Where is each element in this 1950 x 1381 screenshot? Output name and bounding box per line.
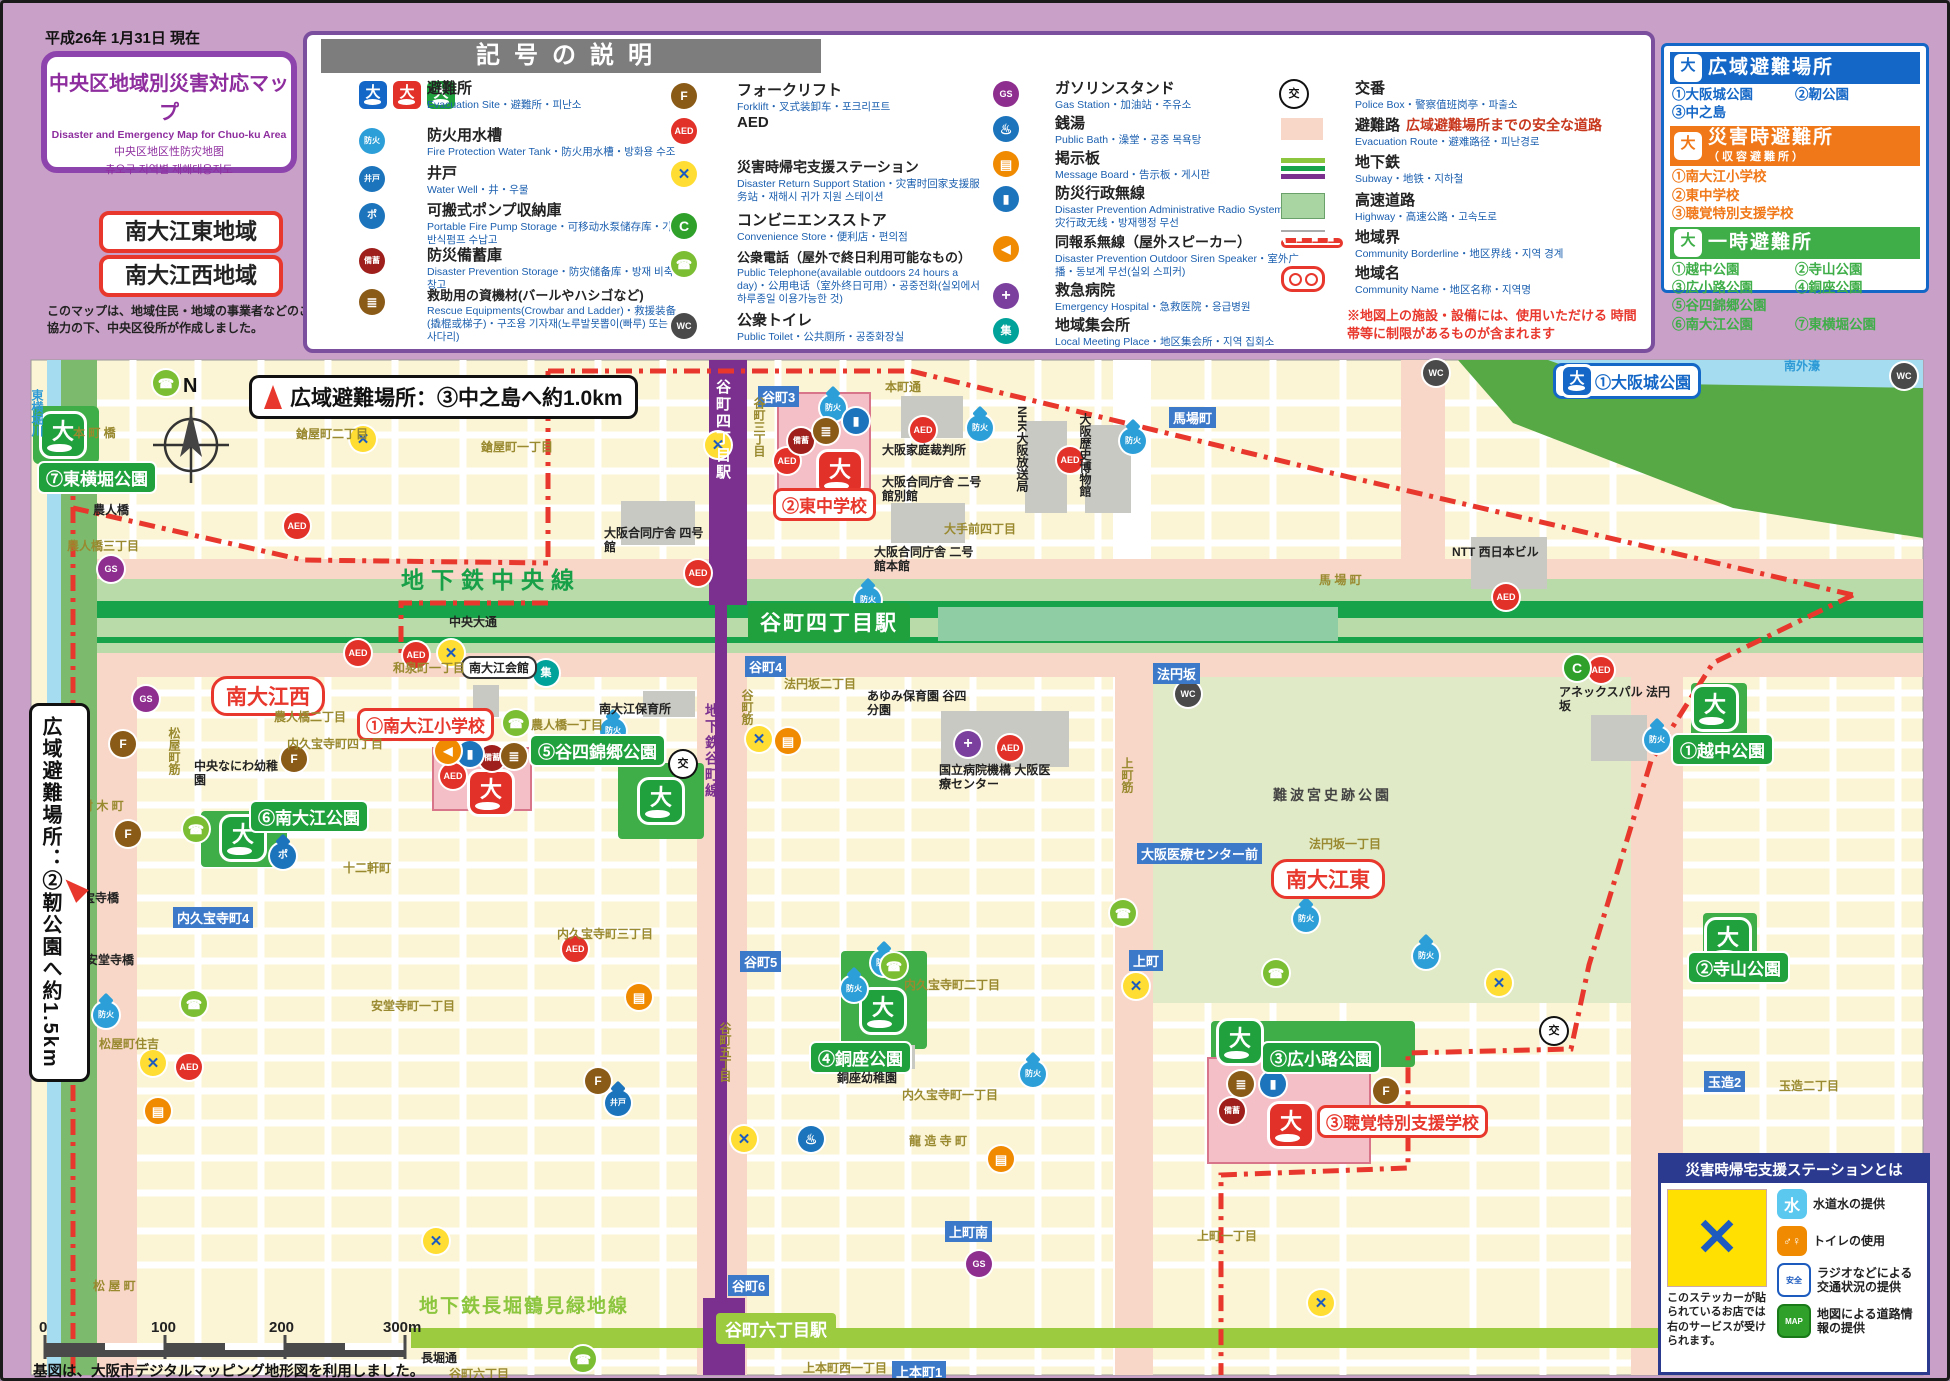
shelter-list-item: ③広小路公園 bbox=[1672, 279, 1795, 297]
conv-icon: C bbox=[671, 213, 697, 239]
legend-item: 銭湯Public Bath・澡堂・공중 목욕탕 bbox=[1055, 112, 1201, 147]
map-label: 国立病院機構 大阪医療センター bbox=[939, 763, 1059, 792]
wc-icon: WC bbox=[671, 313, 697, 339]
map-label: ⑤谷四錦郷公園 bbox=[529, 734, 666, 767]
ladder-icon: ≣ bbox=[501, 743, 527, 769]
highway-swatch bbox=[1281, 193, 1325, 219]
shelter-section-title: 広域避難場所 bbox=[1708, 58, 1834, 78]
support-service-row: ♂♀トイレの使用 bbox=[1777, 1226, 1921, 1256]
legend-item-icon: ☎ bbox=[671, 251, 697, 277]
legend-item-icon: 集 bbox=[993, 318, 1019, 344]
legend-item-label: 同報系無線（屋外スピーカー） bbox=[1055, 232, 1305, 252]
banner-text: 広域避難場所：③中之島へ約1.0km bbox=[290, 382, 623, 412]
phone-icon: ☎ bbox=[503, 710, 529, 736]
shelter-icon: 大 bbox=[1270, 1104, 1312, 1146]
map-label: 地下鉄中央線 bbox=[401, 561, 581, 595]
legend-item-label: 救急病院 bbox=[1055, 279, 1251, 300]
title-text: 災害時避難所 bbox=[1708, 128, 1834, 148]
border-swatch bbox=[1281, 230, 1343, 248]
legend-item: 可搬式ポンプ収納庫Portable Fire Pump Storage・可移动水… bbox=[427, 199, 677, 247]
map-label: 谷町六丁目 bbox=[449, 1365, 509, 1381]
legend-item-label: コンビニエンスストア bbox=[737, 209, 908, 230]
map-label: 農人橋一丁目 bbox=[531, 716, 603, 733]
sento-icon: ♨ bbox=[993, 116, 1019, 142]
legend-item: 避難所Evacuation Site・避難所・피난소 bbox=[427, 77, 581, 112]
map-label: 馬 場 町 bbox=[1319, 571, 1362, 588]
support-service-label: ラジオなどによる交通状況の提供 bbox=[1817, 1266, 1921, 1295]
map-label: 内久宝寺町二丁目 bbox=[904, 976, 1000, 993]
ladder-icon: ≣ bbox=[359, 289, 385, 315]
legend-item: 地域界Community Borderline・地区界线・지역 경계 bbox=[1355, 226, 1563, 261]
legend-item-label: 銭湯 bbox=[1055, 112, 1201, 133]
legend-item: フォークリフトForklift・叉式装卸车・포크리프트 bbox=[737, 79, 890, 114]
legend-item-sub: Subway・地铁・지하철 bbox=[1355, 173, 1463, 186]
fire-icon: 防火 bbox=[967, 415, 993, 441]
aed-icon: AED bbox=[440, 763, 466, 789]
map-label: 谷町筋 bbox=[739, 689, 756, 725]
shelter-section-header: 大災害時避難所（収容避難所） bbox=[1670, 126, 1920, 166]
shelter-section-items: ①越中公園②寺山公園③広小路公園④銅座公園⑤谷四錦郷公園⑥南大江公園⑦東横堀公園 bbox=[1670, 259, 1920, 336]
fire-icon: 防火 bbox=[93, 1002, 119, 1028]
legend-item-icon: ポ bbox=[359, 203, 385, 229]
legend-item-sub: Evacuation Site・避難所・피난소 bbox=[427, 99, 581, 112]
bichiku-icon: 備蓄 bbox=[359, 248, 385, 274]
police-icon: 交 bbox=[670, 751, 696, 777]
board-icon: ▤ bbox=[988, 1146, 1014, 1172]
ido-icon: 井戸 bbox=[605, 1090, 631, 1116]
map-label: 南大江保育所 bbox=[599, 700, 671, 717]
legend-item: 公衆電話（屋外で終日利用可能なもの）Public Telephone(avail… bbox=[737, 247, 987, 306]
map-label: 谷町三丁目 bbox=[751, 397, 768, 457]
subway-line bbox=[1281, 158, 1325, 163]
map-label: ③広小路公園 bbox=[1261, 1041, 1381, 1074]
map-label: 大阪医療センター前 bbox=[1137, 843, 1262, 864]
map-label: 玉造二丁目 bbox=[1779, 1077, 1839, 1094]
legend-item-sub: Message Board・告示板・게시판 bbox=[1055, 169, 1210, 182]
title-box: 中央区地域別災害対応マップ Disaster and Emergency Map… bbox=[41, 51, 297, 173]
map-label: 本 町 橋 bbox=[73, 424, 116, 441]
support-service-label: 水道水の提供 bbox=[1813, 1197, 1885, 1211]
pump-icon: ポ bbox=[270, 843, 296, 869]
map-label: 長堀通 bbox=[421, 1349, 457, 1366]
legend-item-label: 避難所 bbox=[427, 77, 581, 98]
legend-item-icon bbox=[1281, 266, 1325, 292]
shelter-icon: 大 bbox=[393, 81, 421, 109]
map-label: NTT 西日本ビル bbox=[1452, 543, 1539, 560]
legend-item-label: 地下鉄 bbox=[1355, 151, 1463, 172]
map-label: 大阪合同庁舎 二号館本館 bbox=[874, 545, 984, 574]
legend-item-label: 地域名 bbox=[1355, 262, 1531, 283]
legend-item: 避難路広域避難場所までの安全な道路Evacuation Route・避难路径・피… bbox=[1355, 114, 1602, 149]
shelter-list-item: ③聴覚特別支援学校 bbox=[1672, 205, 1918, 223]
ladder-icon: ≣ bbox=[1228, 1071, 1254, 1097]
support-service-row: 水水道水の提供 bbox=[1777, 1189, 1921, 1219]
scale-tick-label: 0 bbox=[39, 1319, 47, 1336]
shelter-icon: 大 bbox=[1694, 687, 1736, 729]
map-label: あゆみ保育園 谷四分園 bbox=[867, 689, 977, 718]
support-service-row: MAP地図による道路情報の提供 bbox=[1777, 1304, 1921, 1338]
shelter-section-items: ①大阪城公園②靭公園③中之島 bbox=[1670, 84, 1920, 124]
shukai-icon: 集 bbox=[993, 318, 1019, 344]
map-label: 内久宝寺町四丁目 bbox=[287, 735, 383, 752]
aed-icon: AED bbox=[1588, 657, 1614, 683]
pump-icon: ポ bbox=[359, 203, 385, 229]
legend-item-label: 地域界 bbox=[1355, 226, 1563, 247]
date-note: 平成26年 1月31日 現在 bbox=[45, 27, 200, 48]
map-label: 安堂寺橋 bbox=[86, 951, 134, 968]
map-label: 中央なにわ幼稚園 bbox=[194, 759, 284, 788]
legend-item-label: 可搬式ポンプ収納庫 bbox=[427, 199, 677, 220]
map-label: ③聴覚特別支援学校 bbox=[1317, 1105, 1488, 1138]
map-label: 農人橋 bbox=[93, 501, 129, 518]
page-title-ko: 츄오구 지역별 재해대응지도 bbox=[47, 161, 291, 177]
legend-item-label: 公衆電話（屋外で終日利用可能なもの） bbox=[737, 247, 987, 266]
map-label: 谷町4 bbox=[745, 656, 786, 677]
compass-north-label: N bbox=[183, 375, 197, 398]
support-service-row: 安全ラジオなどによる交通状況の提供 bbox=[1777, 1263, 1921, 1297]
phone-icon: ☎ bbox=[1263, 960, 1289, 986]
fork-icon: F bbox=[110, 731, 136, 757]
legend-item-sub: Rescue Equipments(Crowbar and Ladder)・救援… bbox=[427, 305, 677, 344]
conv-icon: C bbox=[1564, 655, 1590, 681]
shelter-section-header: 大広域避難場所 bbox=[1670, 52, 1920, 84]
map-label: 龍 造 寺 町 bbox=[909, 1132, 967, 1149]
map-label: 玉造2 bbox=[1704, 1071, 1745, 1092]
speaker-icon: ◀ bbox=[435, 738, 461, 764]
map-label: ②東中学校 bbox=[773, 488, 876, 521]
shelter-icon: 大 bbox=[359, 81, 387, 109]
wc-icon: WC bbox=[1175, 681, 1201, 707]
evacuation-direction-banner: 広域避難場所：②靭公園へ約1.5km bbox=[29, 703, 90, 1082]
police-icon: 交 bbox=[1541, 1018, 1567, 1044]
shelter-list-item: ⑤谷四錦郷公園 bbox=[1672, 297, 1918, 315]
red-arrow-icon bbox=[264, 385, 282, 409]
support-sticker-note: このステッカーが貼られているお店では右のサービスが受けられます。 bbox=[1667, 1291, 1771, 1348]
wc-icon: WC bbox=[1891, 363, 1917, 389]
legend-item-sub: Fire Protection Water Tank・防火用水槽・방화용 수조 bbox=[427, 146, 675, 159]
shelter-list-item: ②靭公園 bbox=[1795, 86, 1918, 104]
legend-item-label: 公衆トイレ bbox=[737, 309, 904, 330]
legend-item-sub: Community Name・地区名称・지역명 bbox=[1355, 284, 1531, 297]
kitaku-icon: ✕ bbox=[423, 1228, 449, 1254]
page-title-en: Disaster and Emergency Map for Chuo-ku A… bbox=[47, 129, 291, 141]
fork-icon: F bbox=[671, 83, 697, 109]
legend-item-label: 防火用水槽 bbox=[427, 124, 675, 145]
scale-tick-label: 200 bbox=[269, 1319, 294, 1336]
map-label: 上町一丁目 bbox=[1197, 1227, 1257, 1244]
aed-icon: AED bbox=[1493, 584, 1519, 610]
legend-item-sub: Disaster Prevention Outdoor Siren Speake… bbox=[1055, 253, 1305, 279]
legend-item-label: フォークリフト bbox=[737, 79, 890, 100]
map-label: 法円坂 bbox=[1153, 663, 1200, 684]
map-label: 法円坂二丁目 bbox=[784, 675, 856, 692]
title-text: 一時避難所 bbox=[1708, 233, 1813, 253]
support-service-label: トイレの使用 bbox=[1813, 1234, 1885, 1248]
phone-icon: ☎ bbox=[181, 991, 207, 1017]
phone-icon: ☎ bbox=[671, 251, 697, 277]
legend-title: 記号の説明 bbox=[321, 39, 821, 73]
legend-item: 災害時帰宅支援ステーションDisaster Return Support Sta… bbox=[737, 157, 987, 204]
shelter-section-title: 一時避難所 bbox=[1708, 233, 1813, 253]
speaker-icon: ◀ bbox=[993, 236, 1019, 262]
evacuation-route-swatch bbox=[1281, 118, 1323, 140]
map-label: ①越中公園 bbox=[1671, 733, 1774, 766]
support-box-title: 災害時帰宅支援ステーションとは bbox=[1661, 1156, 1927, 1183]
support-service-label: 地図による道路情報の提供 bbox=[1817, 1307, 1921, 1336]
legend-item: 防火用水槽Fire Protection Water Tank・防火用水槽・방화… bbox=[427, 124, 675, 159]
shelter-list-item: ①大阪城公園 bbox=[1672, 86, 1795, 104]
phone-icon: ☎ bbox=[570, 1346, 596, 1372]
legend-box: 記号の説明 大大大避難所Evacuation Site・避難所・피난소防火防火用… bbox=[303, 31, 1655, 353]
legend-item-label: ガソリンスタンド bbox=[1055, 77, 1191, 98]
legend-item: 高速道路Highway・高速公路・고속도로 bbox=[1355, 189, 1497, 224]
shelter-list-item: ②寺山公園 bbox=[1795, 261, 1918, 279]
map-label: 谷町5 bbox=[740, 951, 781, 972]
legend-item-sub: Evacuation Route・避难路径・피난경로 bbox=[1355, 136, 1602, 149]
legend-item-sub: Disaster Prevention Administrative Radio… bbox=[1055, 204, 1305, 230]
sento-icon: ♨ bbox=[798, 1126, 824, 1152]
fork-icon: F bbox=[115, 821, 141, 847]
shelter-list-item: ①越中公園 bbox=[1672, 261, 1795, 279]
shelter-icon: 大 bbox=[862, 990, 904, 1032]
aed-icon: AED bbox=[910, 417, 936, 443]
map-label: 農人橋二丁目 bbox=[274, 708, 346, 725]
fire-icon: 防火 bbox=[1020, 1061, 1046, 1087]
map-icon: MAP bbox=[1777, 1304, 1811, 1338]
legend-item-icon: + bbox=[993, 283, 1019, 309]
map-label: 地下鉄谷町線 bbox=[702, 703, 722, 799]
map-label: 大阪合同庁舎 四号館 bbox=[604, 526, 712, 555]
legend-item-icon: 交 bbox=[1281, 81, 1307, 107]
legend-item-label: 救助用の資機材(バールやハシゴなど) bbox=[427, 285, 677, 304]
shelter-list-item: ③中之島 bbox=[1672, 104, 1795, 122]
fire-icon: 防火 bbox=[841, 976, 867, 1002]
shelter-icon: 大 bbox=[1563, 367, 1591, 395]
fork-icon: F bbox=[1373, 1078, 1399, 1104]
legend-item-icon: C bbox=[671, 213, 697, 239]
shelter-list-panel: 大広域避難場所①大阪城公園②靭公園③中之島大災害時避難所（収容避難所）①南大江小… bbox=[1661, 43, 1929, 293]
map-label: 上町筋 bbox=[1119, 757, 1136, 793]
subway-line bbox=[1281, 174, 1325, 179]
map-label: 農人橋三丁目 bbox=[67, 537, 139, 554]
fire-icon: 防火 bbox=[1413, 943, 1439, 969]
map-label: ⑦東横堀公園 bbox=[37, 461, 157, 494]
map-label: アネックスパル 法円坂 bbox=[1559, 685, 1671, 714]
support-services: 水水道水の提供♂♀トイレの使用安全ラジオなどによる交通状況の提供MAP地図による… bbox=[1777, 1189, 1921, 1348]
map-label: 上町 bbox=[1129, 950, 1163, 971]
map-label: NHK大阪放送局 bbox=[1014, 406, 1031, 492]
legend-item-icon: ▤ bbox=[993, 151, 1019, 177]
legend-item-icon: GS bbox=[993, 81, 1019, 107]
legend-item: 地域集会所Local Meeting Place・地区集会所・지역 집회소 bbox=[1055, 314, 1274, 349]
legend-note: ※地図上の施設・設備には、使用いただける 時間帯等に制限があるものが含まれます bbox=[1347, 307, 1647, 342]
map-label: 和泉町一丁目 bbox=[393, 659, 465, 676]
shelter-list-item: ④銅座公園 bbox=[1795, 279, 1918, 297]
aed-icon: AED bbox=[176, 1054, 202, 1080]
gs-icon: GS bbox=[98, 556, 124, 582]
board-icon: ▤ bbox=[775, 728, 801, 754]
fire-icon: 防火 bbox=[1120, 428, 1146, 454]
kitaku-icon: ✕ bbox=[1486, 970, 1512, 996]
scale-tick-label: 300m bbox=[383, 1319, 421, 1336]
legend-item: 地下鉄Subway・地铁・지하철 bbox=[1355, 151, 1463, 186]
legend-item-icon bbox=[1281, 155, 1325, 182]
shelter-icon: 大 bbox=[470, 772, 512, 814]
legend-item: 救急病院Emergency Hospital・急救医院・응급병원 bbox=[1055, 279, 1251, 314]
map-label: 大①大阪城公園 bbox=[1553, 363, 1701, 399]
shelter-list-item: ⑦東横堀公園 bbox=[1795, 316, 1918, 334]
legend-item-sub: Convenience Store・便利店・편의점 bbox=[737, 231, 908, 244]
legend-item-icon: ≣ bbox=[359, 289, 385, 315]
ladder-icon: ≣ bbox=[813, 418, 839, 444]
fork-icon: F bbox=[585, 1068, 611, 1094]
scale-tick-label: 100 bbox=[151, 1319, 176, 1336]
red-dash-line bbox=[1281, 238, 1343, 248]
support-sticker: ✕ bbox=[1667, 1189, 1767, 1287]
map-label: 大阪歴史博物館 bbox=[1077, 413, 1094, 497]
area-label-west: 南大江西地域 bbox=[99, 255, 283, 297]
ido-icon: 井戸 bbox=[359, 166, 385, 192]
map-label: 上町南 bbox=[945, 1221, 992, 1242]
legend-item-icon: 井戸 bbox=[359, 166, 385, 192]
shelter-section-header: 大一時避難所 bbox=[1670, 227, 1920, 259]
legend-item-label: 防災行政無線 bbox=[1055, 182, 1305, 203]
subway-line bbox=[1281, 166, 1325, 171]
legend-item-label: AED bbox=[737, 114, 769, 131]
fire-icon: 防火 bbox=[1644, 727, 1670, 753]
shelter-icon: 大 bbox=[640, 780, 682, 822]
page-title: 中央区地域別災害対応マップ bbox=[47, 67, 291, 125]
fire-icon: 防火 bbox=[359, 128, 385, 154]
legend-item-label: 避難路広域避難場所までの安全な道路 bbox=[1355, 114, 1602, 135]
map-label: 法円坂一丁目 bbox=[1309, 835, 1381, 852]
board-icon: ▤ bbox=[993, 151, 1019, 177]
radio-icon: ▮ bbox=[843, 408, 869, 434]
radio-icon: ▮ bbox=[457, 741, 483, 767]
legend-item-icon bbox=[1281, 230, 1343, 248]
legend-item-sub: Water Well・井・우물 bbox=[427, 184, 529, 197]
map-label: 内久宝寺町三丁目 bbox=[557, 925, 653, 942]
legend-item: コンビニエンスストアConvenience Store・便利店・편의점 bbox=[737, 209, 908, 244]
kitaku-icon: ✕ bbox=[731, 1126, 757, 1152]
phone-icon: ☎ bbox=[183, 816, 209, 842]
map-label: 馬場町 bbox=[1169, 407, 1216, 428]
legend-item: ガソリンスタンドGas Station・加油站・주유소 bbox=[1055, 77, 1191, 112]
shelter-section-title: 災害時避難所（収容避難所） bbox=[1708, 128, 1834, 164]
map-label: 谷町五丁目 bbox=[717, 1022, 734, 1082]
shelter-icon: 大 bbox=[1674, 229, 1702, 257]
map-label: 大阪家庭裁判所 bbox=[882, 441, 966, 458]
legend-item: 交番Police Box・警察值班岗亭・파출소 bbox=[1355, 77, 1518, 112]
aed-icon: AED bbox=[685, 560, 711, 586]
fire-icon: 防火 bbox=[1293, 906, 1319, 932]
map-label: 十二軒町 bbox=[343, 859, 391, 876]
shelter-section-items: ①南大江小学校②東中学校③聴覚特別支援学校 bbox=[1670, 166, 1920, 225]
aed-icon: AED bbox=[671, 118, 697, 144]
map-label: 鎗屋町一丁目 bbox=[481, 438, 553, 455]
map-label: 南外濠 bbox=[1784, 357, 1820, 374]
shelter-list-item: ②東中学校 bbox=[1672, 187, 1795, 205]
map-label: ⑥南大江公園 bbox=[249, 800, 369, 833]
shelter-icon: 大 bbox=[1674, 54, 1702, 82]
legend-item-icon: WC bbox=[671, 313, 697, 339]
legend-item: 掲示板Message Board・告示板・게시판 bbox=[1055, 147, 1210, 182]
map-label: 松 屋 町 bbox=[93, 1277, 136, 1294]
map-label: 谷町四丁目駅 bbox=[712, 379, 733, 481]
legend-item-icon bbox=[1281, 118, 1323, 140]
title-subtext: （収容避難所） bbox=[1708, 148, 1834, 164]
legend-item: 井戸Water Well・井・우물 bbox=[427, 162, 529, 197]
area-label-east: 南大江東地域 bbox=[99, 211, 283, 253]
legend-item-icon: ◀ bbox=[993, 236, 1019, 262]
shelter-icon: 大 bbox=[1674, 132, 1702, 160]
legend-item-sub: Highway・高速公路・고속도로 bbox=[1355, 211, 1497, 224]
aed-icon: AED bbox=[345, 640, 371, 666]
subway-swatch bbox=[1281, 155, 1325, 182]
radio-icon: ▮ bbox=[1260, 1071, 1286, 1097]
map-label: 大阪合同庁舎 二号館別館 bbox=[882, 475, 992, 504]
legend-item: 救助用の資機材(バールやハシゴなど)Rescue Equipments(Crow… bbox=[427, 285, 677, 344]
map-label: 谷町六丁目駅 bbox=[716, 1313, 836, 1344]
legend-item-sub: Local Meeting Place・地区集会所・지역 집회소 bbox=[1055, 336, 1274, 349]
phone-icon: ☎ bbox=[153, 370, 179, 396]
kitaku-icon: ✕ bbox=[1123, 973, 1149, 999]
mizu-icon: 水 bbox=[1777, 1189, 1807, 1219]
legend-item: 公衆トイレPublic Toilet・公共厕所・공중화장실 bbox=[737, 309, 904, 344]
legend-item-icon: ✕ bbox=[671, 161, 697, 187]
gray-line bbox=[1281, 230, 1325, 232]
map-label: ②寺山公園 bbox=[1687, 951, 1790, 984]
legend-item: 同報系無線（屋外スピーカー）Disaster Prevention Outdoo… bbox=[1055, 232, 1305, 279]
legend-item-sub: Gas Station・加油站・주유소 bbox=[1055, 99, 1191, 112]
legend-item-sub: Public Telephone(available outdoors 24 h… bbox=[737, 267, 987, 306]
bichiku-icon: 備蓄 bbox=[788, 428, 814, 454]
legend-item-sub: Community Borderline・地区界线・지역 경계 bbox=[1355, 248, 1563, 261]
return-support-box: 災害時帰宅支援ステーションとは ✕ このステッカーが貼られているお店では右のサー… bbox=[1658, 1153, 1930, 1375]
legend-item: AED bbox=[737, 114, 769, 131]
map-label: 地下鉄長堀鶴見緑地線 bbox=[419, 1291, 629, 1318]
shelter-list-item: ①南大江小学校 bbox=[1672, 168, 1918, 186]
map-label: 銅座幼稚園 bbox=[837, 1069, 897, 1086]
legend-item-icon bbox=[1281, 193, 1325, 219]
map-label: 東横堀川 bbox=[29, 389, 46, 437]
road-icon: 安全 bbox=[1777, 1263, 1811, 1297]
shelter-icon: 大 bbox=[1219, 1021, 1261, 1063]
bichiku-icon: 備蓄 bbox=[1219, 1098, 1245, 1124]
board-icon: ▤ bbox=[145, 1098, 171, 1124]
legend-item-icon: AED bbox=[671, 118, 697, 144]
wc-icon: WC bbox=[1423, 360, 1449, 386]
map-label: 難波宮史跡公園 bbox=[1273, 785, 1392, 805]
radio-icon: ▮ bbox=[993, 186, 1019, 212]
circle bbox=[1305, 273, 1318, 286]
map-label: 松屋町住吉 bbox=[99, 1035, 159, 1052]
shelter-list-item: ⑥南大江公園 bbox=[1672, 316, 1795, 334]
legend-item-icon: 防火 bbox=[359, 128, 385, 154]
legend-item-label: 防災備蓄庫 bbox=[427, 244, 677, 265]
legend-item-icon: F bbox=[671, 83, 697, 109]
map-label: 松屋町筋 bbox=[166, 727, 183, 775]
disaster-map-page: 平成26年 1月31日 現在 中央区地域別災害対応マップ Disaster an… bbox=[0, 0, 1950, 1381]
community-name-swatch bbox=[1281, 266, 1325, 292]
map-label: 上本町西一丁目 bbox=[803, 1359, 887, 1376]
page-title-zh: 中央区地区性防灾地图 bbox=[47, 143, 291, 159]
aed-icon: AED bbox=[284, 513, 310, 539]
kitaku-icon: ✕ bbox=[671, 161, 697, 187]
legend-item-label: 災害時帰宅支援ステーション bbox=[737, 157, 987, 177]
circle bbox=[1289, 273, 1302, 286]
header-note: このマップは、地域住民・地域の事業者などのご協力の下、中央区役所が作成しました。 bbox=[47, 303, 315, 338]
